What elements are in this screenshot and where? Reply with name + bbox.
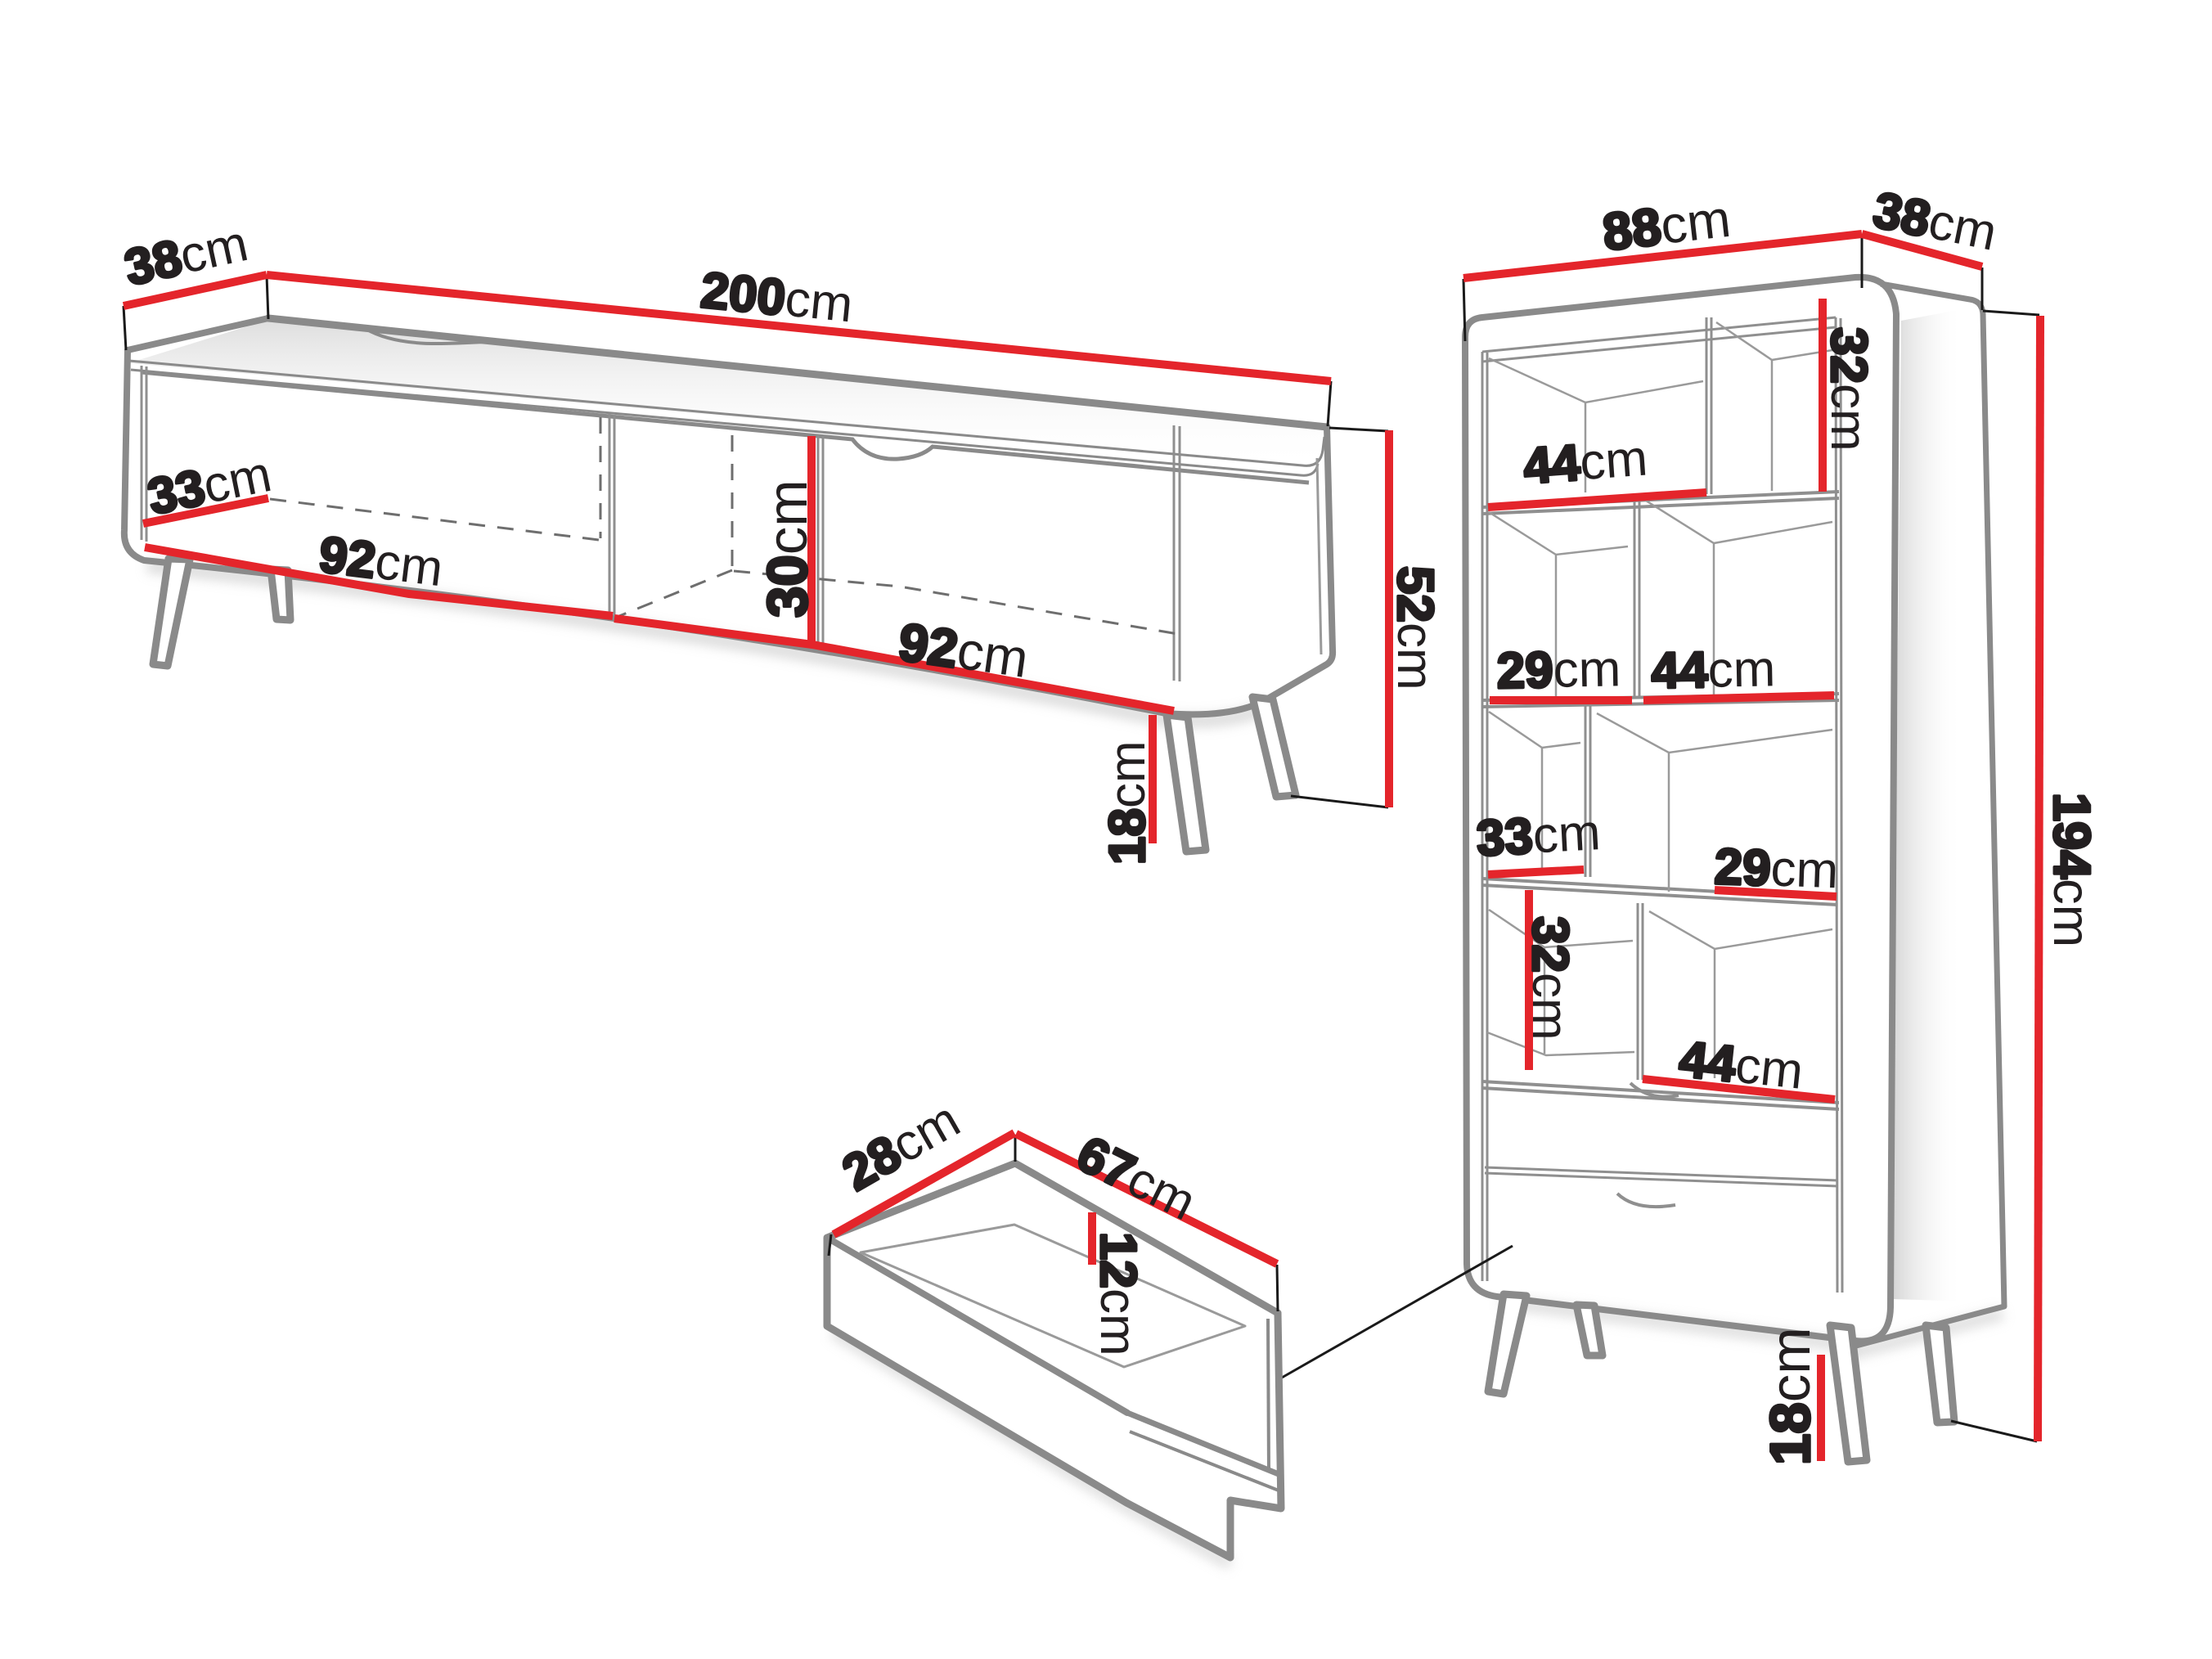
svg-text:32cm: 32cm (1522, 916, 1578, 1041)
svg-text:18cm: 18cm (1759, 1327, 1822, 1465)
svg-text:52cm: 52cm (1387, 566, 1443, 690)
svg-text:194cm: 194cm (2043, 793, 2100, 947)
svg-text:29cm: 29cm (1496, 641, 1621, 699)
svg-text:32cm: 32cm (1820, 327, 1877, 452)
svg-text:29cm: 29cm (1714, 838, 1840, 899)
svg-text:44cm: 44cm (1651, 641, 1776, 699)
svg-text:12cm: 12cm (1090, 1232, 1146, 1356)
svg-text:33cm: 33cm (1475, 804, 1602, 867)
svg-text:18cm: 18cm (1099, 740, 1156, 865)
svg-text:44cm: 44cm (1522, 430, 1649, 495)
svg-text:30cm: 30cm (756, 479, 819, 618)
